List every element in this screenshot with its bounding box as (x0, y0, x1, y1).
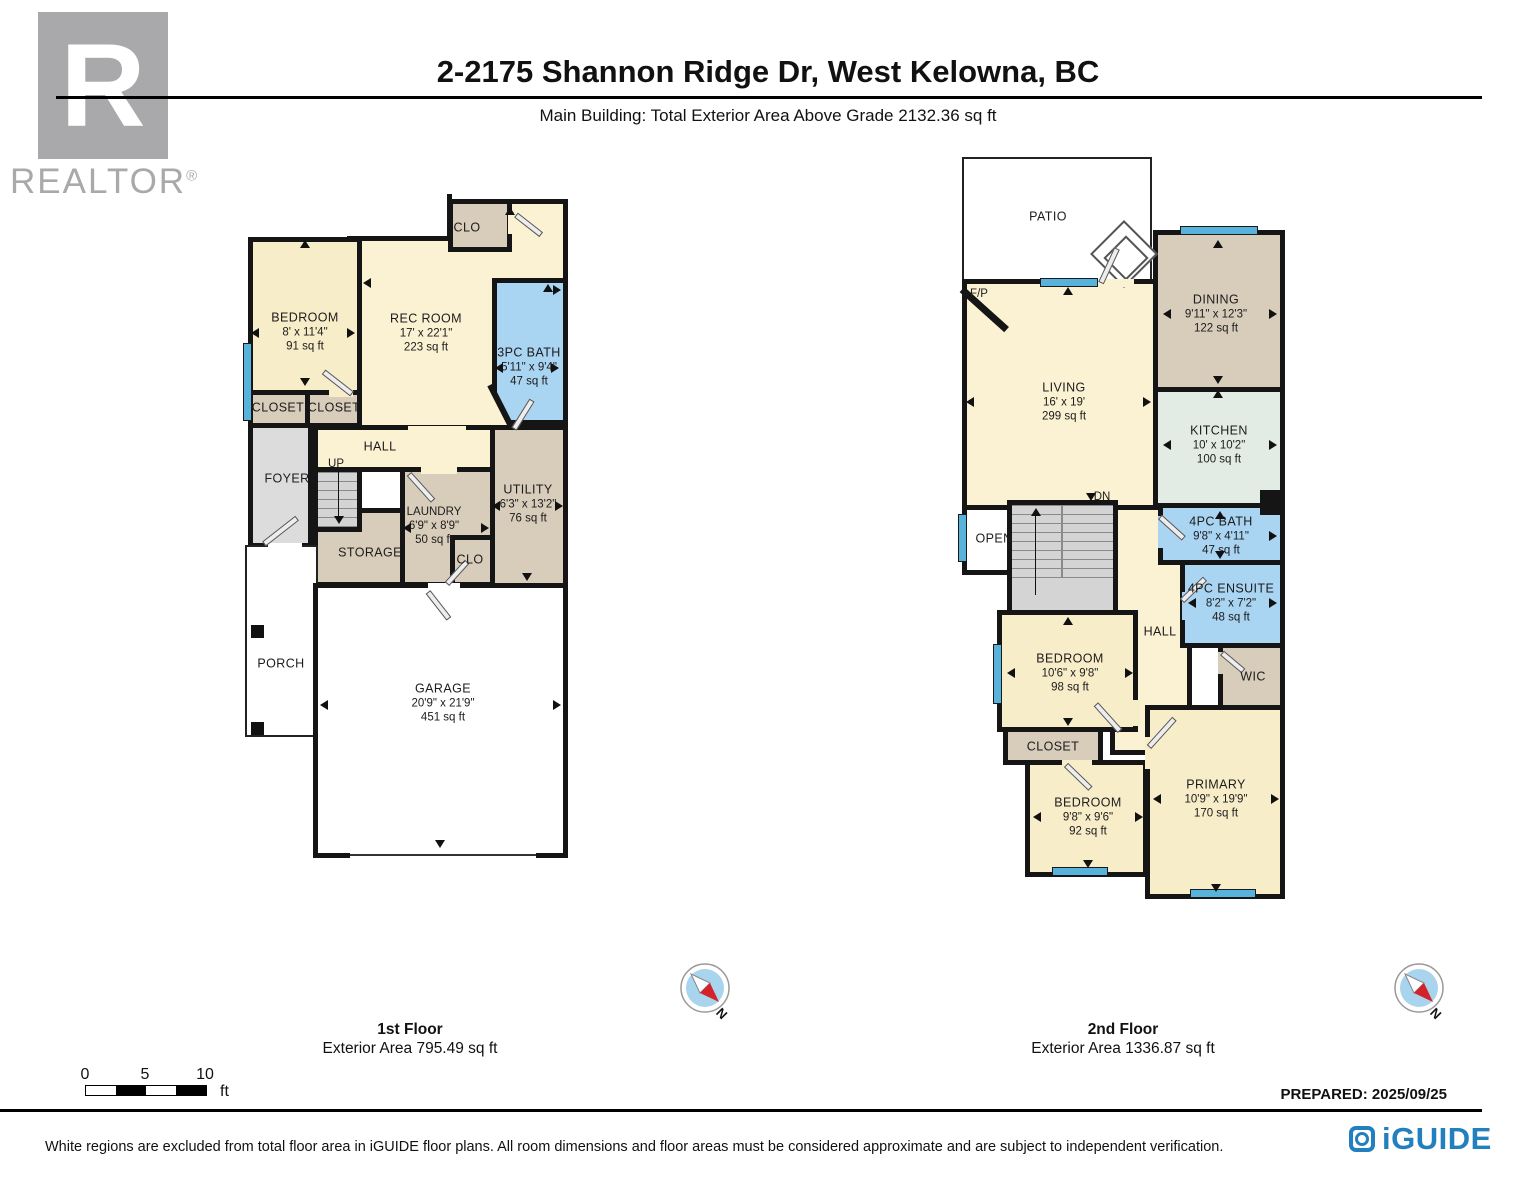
stair-arrow-line (1035, 515, 1036, 595)
dim-arrow (543, 284, 553, 292)
iguide-camera-icon (1349, 1126, 1375, 1152)
dim-arrow (1213, 390, 1223, 398)
floor1-caption: 1st Floor Exterior Area 795.49 sq ft (323, 1020, 498, 1059)
dim-arrow (495, 363, 503, 373)
dim-arrow (1163, 440, 1171, 450)
dim-arrow (553, 285, 561, 295)
dim-arrow (1033, 812, 1041, 822)
dim-arrow (1211, 884, 1221, 892)
room-label: BEDROOM8' x 11'4"91 sq ft (271, 310, 338, 353)
room-label: CLO (454, 220, 481, 235)
dim-arrow (1213, 376, 1223, 384)
stair-arrow-head (334, 516, 344, 524)
dim-arrow (403, 523, 411, 533)
iguide-logo-text: iGUIDE (1382, 1121, 1492, 1157)
window (1052, 867, 1108, 876)
room-label: OPEN (975, 531, 1012, 546)
room-label: REC ROOM17' x 22'1"223 sq ft (390, 311, 462, 354)
stair-arrow-line (338, 471, 339, 517)
dim-arrow (1269, 309, 1277, 319)
scale-tick: 5 (141, 1066, 150, 1084)
room-label: PORCH (257, 656, 304, 671)
page-title: 2-2175 Shannon Ridge Dr, West Kelowna, B… (0, 54, 1536, 90)
dim-arrow (1215, 511, 1225, 519)
room-label: HALL (364, 439, 397, 454)
stair-divider (1061, 505, 1063, 578)
room-label: FOYER (264, 471, 309, 486)
garage-door (350, 851, 536, 860)
footer-divider (0, 1109, 1482, 1112)
disclaimer-text: White regions are excluded from total fl… (45, 1139, 1223, 1155)
dim-arrow (1271, 794, 1279, 804)
down-arrow (1086, 493, 1096, 501)
dim-arrow (1213, 240, 1223, 248)
wall-opening (408, 426, 466, 434)
dim-arrow (492, 501, 500, 511)
window (1040, 278, 1098, 287)
scale-bar (85, 1085, 207, 1096)
room-label: BEDROOM9'8" x 9'6"92 sq ft (1054, 795, 1121, 838)
room-label: STORAGE (338, 545, 402, 560)
dim-arrow (1215, 551, 1225, 559)
room-label: KITCHEN10' x 10'2"100 sq ft (1190, 423, 1248, 466)
door-opening (421, 467, 457, 474)
window (993, 644, 1002, 704)
porch-post (251, 722, 264, 735)
room-label: PRIMARY10'9" x 19'9"170 sq ft (1184, 777, 1247, 820)
dim-arrow (1083, 860, 1093, 868)
dim-arrow (522, 573, 532, 581)
dim-arrow (1269, 531, 1277, 541)
dim-arrow (1153, 794, 1161, 804)
dim-arrow (1063, 287, 1073, 295)
floor-plan-sheet: R REALTOR® 2-2175 Shannon Ridge Dr, West… (0, 0, 1536, 1187)
room-label: UTILITY6'3" x 13'2"76 sq ft (500, 482, 557, 525)
exterior-notch (347, 194, 452, 241)
porch-post (251, 625, 264, 638)
stair-arrow-head (1031, 508, 1041, 516)
room-porch (245, 545, 318, 737)
room-label: BEDROOM10'6" x 9'8"98 sq ft (1036, 651, 1103, 694)
iguide-logo: iGUIDE (1349, 1121, 1492, 1157)
room-label: DN (1094, 490, 1111, 504)
room-label: GARAGE20'9" x 21'9"451 sq ft (411, 681, 474, 724)
scale-unit: ft (220, 1083, 229, 1101)
room-label: CLO (457, 552, 484, 567)
dim-arrow (1135, 812, 1143, 822)
dim-arrow (555, 501, 563, 511)
dim-arrow (1163, 309, 1171, 319)
room-label: WIC (1240, 669, 1266, 684)
floor2-caption: 2nd Floor Exterior Area 1336.87 sq ft (1031, 1020, 1215, 1059)
window (243, 343, 252, 421)
dim-arrow (966, 397, 974, 407)
room-label: DINING9'11" x 12'3"122 sq ft (1185, 292, 1247, 335)
room-label: CLOSET (1027, 739, 1079, 754)
window (1180, 226, 1258, 235)
room-label: CLOSET (308, 400, 360, 415)
dim-arrow (505, 207, 515, 215)
dim-arrow (481, 523, 489, 533)
dim-arrow (251, 328, 259, 338)
room-label: HALL (1144, 624, 1177, 639)
door-opening (1133, 700, 1140, 726)
window (1190, 889, 1256, 898)
room-label: 4PC ENSUITE8'2" x 7'2"48 sq ft (1188, 581, 1274, 624)
realtor-wordmark: REALTOR® (10, 162, 199, 202)
dim-arrow (1269, 440, 1277, 450)
dim-arrow (1063, 617, 1073, 625)
door-opening (428, 583, 460, 591)
dim-arrow (1007, 668, 1015, 678)
dim-arrow (553, 700, 561, 710)
prepared-date: PREPARED: 2025/09/25 (1147, 1086, 1447, 1103)
dim-arrow (1125, 668, 1133, 678)
scale-tick: 10 (196, 1066, 214, 1084)
window (958, 514, 967, 562)
dim-arrow (363, 278, 371, 288)
door-opening (268, 543, 302, 549)
dim-arrow (1269, 598, 1277, 608)
dim-arrow (1143, 397, 1151, 407)
dim-arrow (300, 378, 310, 386)
scale-tick: 0 (81, 1066, 90, 1084)
dim-arrow (551, 363, 559, 373)
dim-arrow (320, 700, 328, 710)
room-label: LIVING16' x 19'299 sq ft (1042, 380, 1086, 423)
dim-arrow (347, 328, 355, 338)
page-subtitle: Main Building: Total Exterior Area Above… (0, 106, 1536, 126)
dim-arrow (300, 240, 310, 248)
room-label: F/P (970, 287, 988, 301)
room-label: CLOSET (252, 400, 304, 415)
dim-arrow (1188, 598, 1196, 608)
room-label: UP (328, 457, 344, 471)
kitchen-wall-notch (1260, 490, 1285, 515)
room-label: PATIO (1029, 209, 1067, 224)
title-divider (56, 96, 1482, 99)
room-label: LAUNDRY6'9" x 8'9"50 sq ft (407, 505, 462, 547)
dim-arrow (435, 840, 445, 848)
dim-arrow (1063, 718, 1073, 726)
